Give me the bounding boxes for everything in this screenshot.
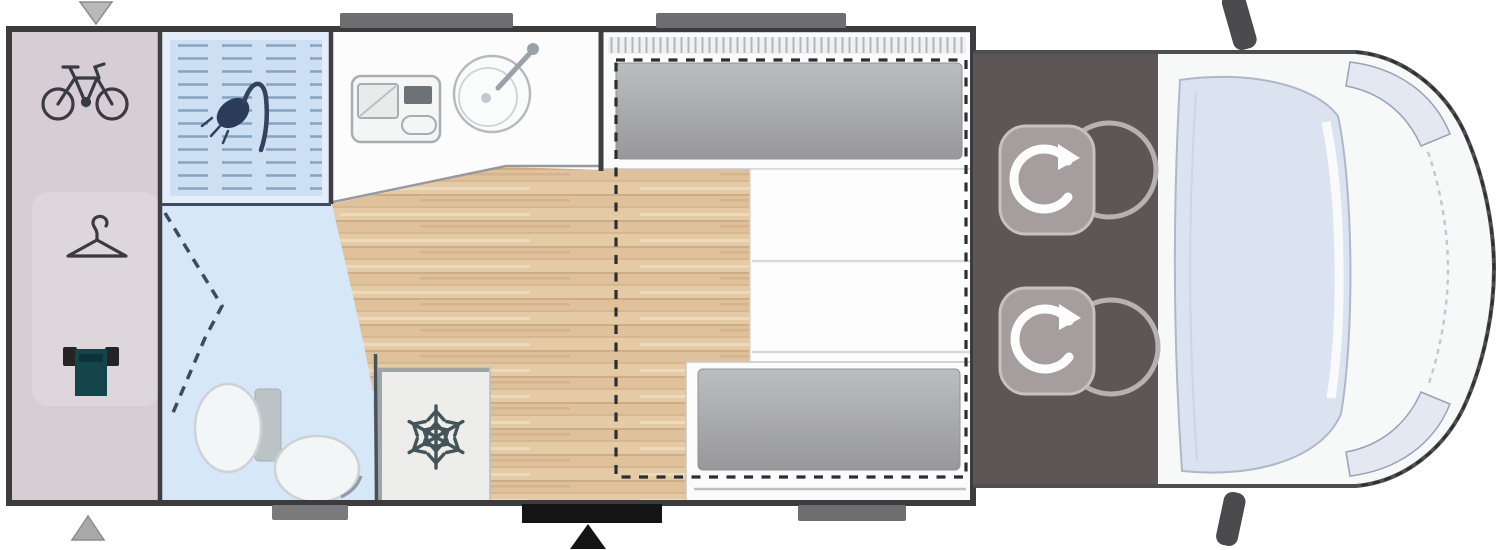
double-bed	[750, 169, 972, 362]
top-bunk-mattress	[616, 63, 962, 159]
bottom-bunk-mattress	[698, 369, 960, 470]
window-marker-top-2	[656, 13, 846, 28]
cab-area	[973, 52, 1158, 486]
bunk-ladder-strip	[608, 37, 966, 54]
floorplan-stage	[0, 0, 1500, 550]
wall-bathroom-stub	[376, 354, 377, 503]
floorplan-svg	[0, 0, 1500, 550]
top-bunk-frame	[602, 32, 972, 169]
window-marker-bottom-2	[798, 505, 906, 521]
entry-door-marker	[522, 504, 662, 549]
cooktop-icon	[352, 76, 440, 142]
window-marker-top-1	[340, 13, 513, 28]
fridge-unit	[378, 368, 490, 503]
bottom-bunk-frame	[686, 362, 972, 503]
garage-area	[11, 31, 160, 502]
side-mirror-bottom-icon	[1214, 490, 1247, 547]
shower-hatch	[170, 40, 322, 196]
windshield	[1175, 77, 1350, 473]
side-mirror-top-icon	[1220, 0, 1259, 52]
entry-door-arrow-icon	[570, 524, 606, 549]
arrow-down-icon	[80, 2, 112, 24]
window-marker-bottom-1	[272, 505, 348, 520]
arrow-up-icon	[72, 516, 104, 540]
shower-area	[161, 31, 331, 204]
